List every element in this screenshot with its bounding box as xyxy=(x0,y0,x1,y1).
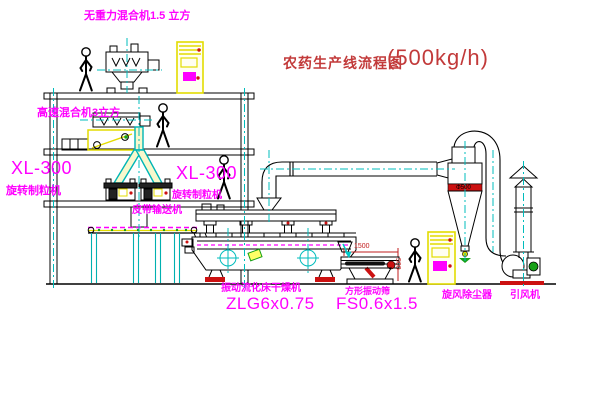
label-granulator-right-model: XL-300 xyxy=(176,164,237,182)
dimension-screen-height: 500 xyxy=(394,258,401,270)
label-granulator-left-model: XL-300 xyxy=(11,159,72,177)
belt-conveyor xyxy=(88,227,209,283)
label-cyclone: 旋风除尘器 xyxy=(442,291,492,301)
worker-figure-middle xyxy=(157,104,169,147)
gravity-free-mixer xyxy=(106,44,159,93)
control-cabinet-top xyxy=(177,42,203,93)
label-fan: 引风机 xyxy=(510,291,540,301)
induced-draft-fan xyxy=(500,255,544,285)
cyclone-band-marking: Φ500 xyxy=(456,185,471,191)
worker-figure-right xyxy=(409,239,421,282)
label-granulator-left-name: 旋转制粒机 xyxy=(6,186,61,197)
label-dryer-name: 振动流化床干燥机 xyxy=(221,284,301,294)
label-top-mixer: 无重力混合机1.5 立方 xyxy=(84,11,190,22)
dimension-screen-length: 1500 xyxy=(354,243,370,250)
label-granulator-right-name: 旋转制粒机 xyxy=(172,191,222,201)
label-mid-mixer: 高速混合机3立方 xyxy=(37,108,120,119)
control-cabinet-bottom xyxy=(428,232,455,284)
worker-figure-top xyxy=(80,48,92,91)
label-screen-model: FS0.6x1.5 xyxy=(336,295,418,312)
label-dryer-model: ZLG6x0.75 xyxy=(226,295,315,312)
cad-flow-diagram: 农药生产线流程图 (500kg/h) 无重力混合机1.5 立方 高速混合机3立方… xyxy=(0,0,600,403)
label-belt-conveyor: 皮带输送机 xyxy=(132,206,182,216)
exhaust-duct xyxy=(262,162,437,198)
title-capacity: (500kg/h) xyxy=(387,45,489,71)
title-text: 农药生产线流程图 xyxy=(283,53,403,73)
